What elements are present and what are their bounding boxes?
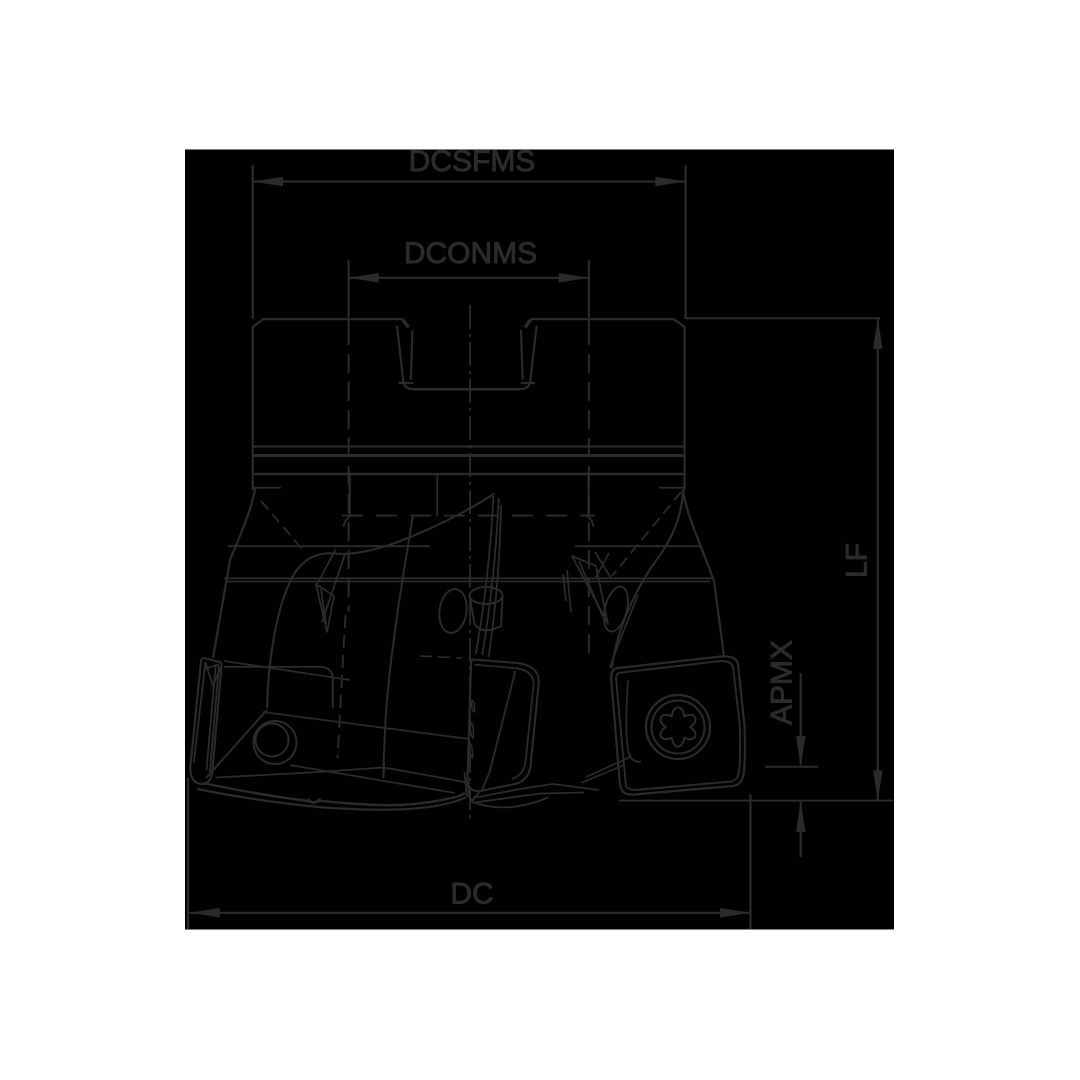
svg-text:DCSFMS: DCSFMS bbox=[409, 145, 536, 178]
svg-text:DC: DC bbox=[450, 878, 493, 911]
svg-text:DCONMS: DCONMS bbox=[404, 237, 537, 270]
svg-text:LF: LF bbox=[841, 543, 874, 578]
svg-text:APMX: APMX bbox=[766, 640, 799, 725]
